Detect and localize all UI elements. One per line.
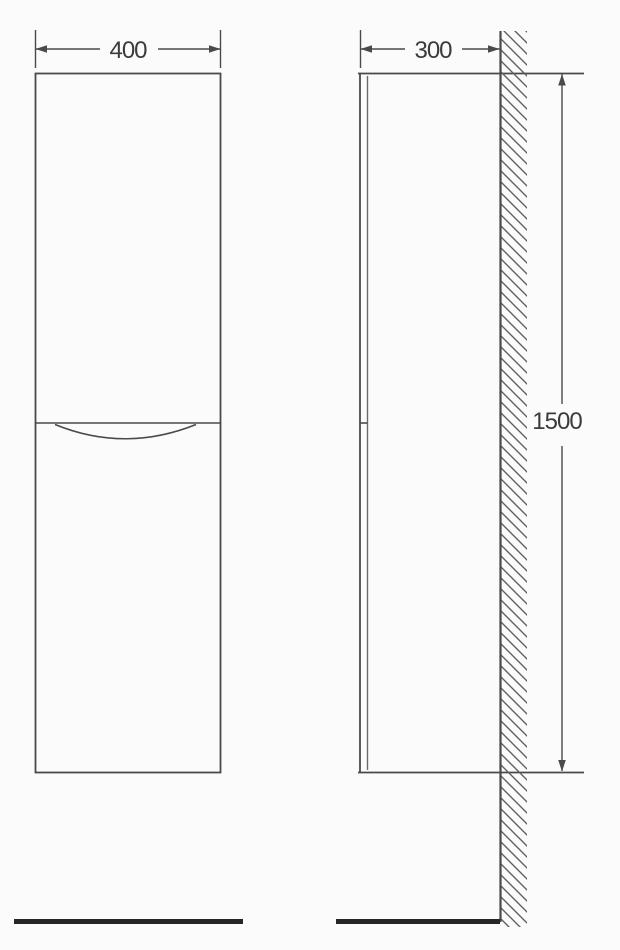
depth-arrow-right-icon [488, 45, 500, 53]
width-arrow-left-icon [36, 45, 48, 53]
technical-drawing-page: 400 300 1500 [0, 0, 620, 950]
height-arrow-down-icon [558, 760, 566, 772]
height-dimension: 1500 [532, 74, 582, 772]
wall [501, 31, 528, 927]
door-handle-curve [55, 425, 196, 439]
depth-value: 300 [414, 37, 452, 64]
width-value: 400 [109, 37, 147, 64]
wall-hatching [501, 31, 527, 927]
width-dimension: 400 [36, 30, 221, 68]
height-value: 1500 [532, 408, 582, 435]
front-view [36, 74, 221, 773]
width-arrow-right-icon [209, 45, 221, 53]
depth-dimension: 300 [361, 30, 500, 68]
height-arrow-up-icon [558, 74, 566, 86]
depth-arrow-left-icon [361, 45, 373, 53]
cabinet-dimension-drawing: 400 300 1500 [0, 0, 620, 950]
